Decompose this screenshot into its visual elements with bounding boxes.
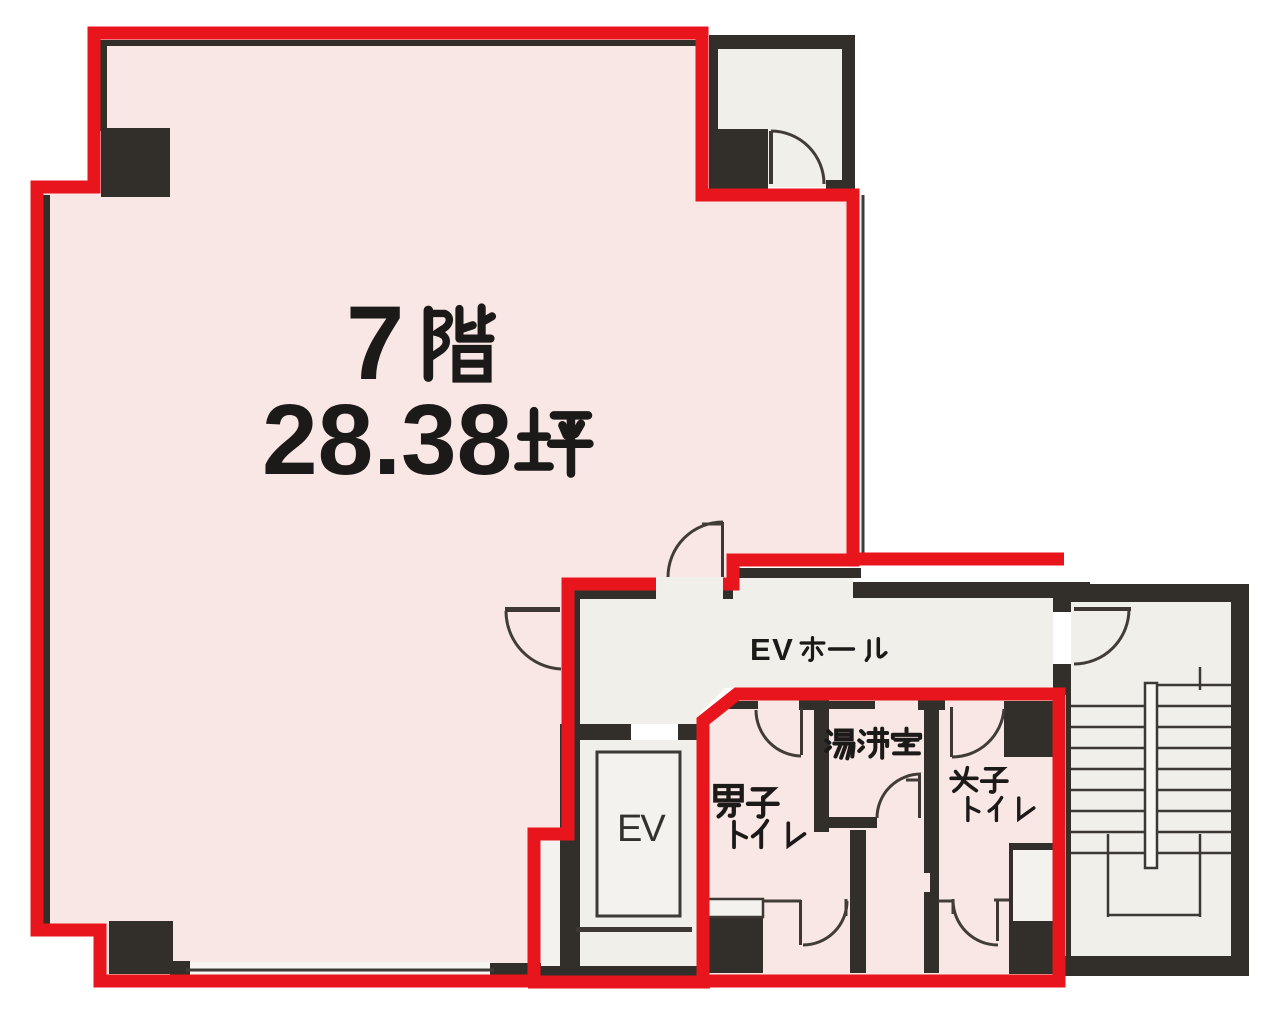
svg-text:EV: EV bbox=[617, 808, 666, 850]
svg-text:28.38: 28.38 bbox=[262, 384, 512, 496]
svg-text:EV: EV bbox=[750, 632, 794, 667]
